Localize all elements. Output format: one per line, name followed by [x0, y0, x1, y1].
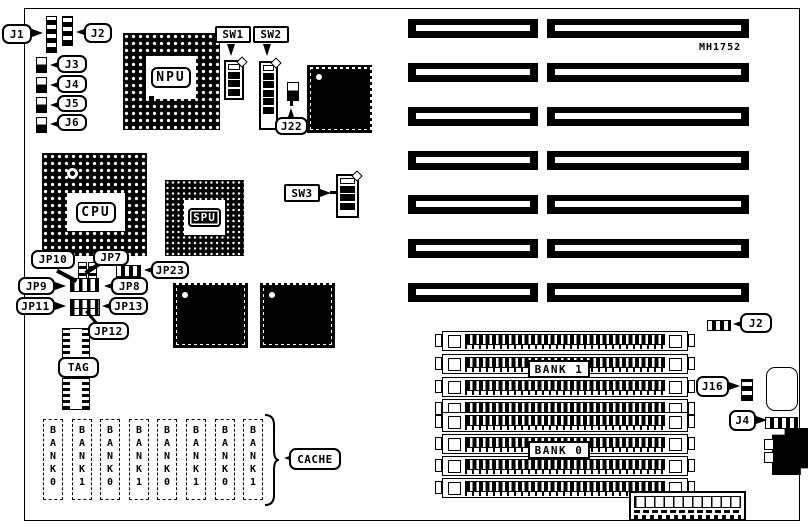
- label-jp12: JP12: [88, 322, 129, 340]
- sw3-cell: [340, 186, 355, 193]
- connector-jp23: [116, 265, 141, 277]
- sw2-cell: [263, 98, 274, 105]
- callout-tail-jp9: [55, 282, 70, 290]
- cache-socket-label: BANK0: [49, 424, 57, 499]
- label-j4-right: J4: [729, 410, 756, 431]
- sw3-cell: [340, 178, 355, 185]
- simm-stub: [435, 380, 442, 393]
- sw2-cell: [263, 107, 274, 114]
- cache-socket-label: BANK0: [106, 424, 114, 499]
- cache-socket: BANK0: [43, 419, 63, 500]
- simm-slot-bank1: [442, 377, 688, 397]
- expansion-slot-long: [547, 19, 749, 38]
- expansion-slot-long: [547, 63, 749, 82]
- label-jp11: JP11: [16, 297, 55, 315]
- slot-slit: [555, 201, 741, 207]
- label-sw1: SW1: [215, 26, 251, 43]
- cache-brace: [263, 412, 281, 512]
- callout-tail-j1: [32, 29, 47, 37]
- simm-pins: [465, 334, 665, 345]
- npu-pin1-marker: [149, 96, 154, 101]
- tag-sram-chip-lower: [62, 378, 90, 410]
- label-jp23: JP23: [151, 261, 189, 279]
- expansion-slot-long: [547, 151, 749, 170]
- label-j1: J1: [2, 24, 32, 44]
- callout-tail-j16: [729, 382, 744, 390]
- callout-tail-sw1: [227, 44, 235, 60]
- label-bank1: BANK 1: [528, 360, 590, 378]
- battery-outline: [766, 367, 798, 411]
- sw3-cell: [340, 203, 355, 210]
- simm-stub: [688, 402, 695, 415]
- simm-stub: [688, 380, 695, 393]
- label-j3: J3: [57, 55, 87, 73]
- cache-socket-label: BANK1: [135, 424, 143, 499]
- simm-ticks: [465, 391, 665, 395]
- simm-slot-bank1: [442, 331, 688, 351]
- sw1-cell: [228, 89, 240, 96]
- expansion-slot-short: [408, 283, 538, 302]
- slot-slit: [416, 245, 530, 251]
- simm-clip: [669, 460, 682, 473]
- simm-stub: [688, 459, 695, 472]
- cpu-chip-face: CPU: [67, 193, 125, 231]
- cache-socket: BANK1: [186, 419, 206, 500]
- slot-slit: [555, 157, 741, 163]
- simm-ticks: [465, 470, 665, 474]
- sw1-cell: [228, 72, 240, 79]
- slot-slit: [555, 289, 741, 295]
- qfp-chip-3-pin1-dot: [269, 292, 275, 298]
- simm-stub: [435, 334, 442, 347]
- cache-socket: BANK1: [129, 419, 149, 500]
- qfp-chip-1: [307, 65, 372, 133]
- slot-slit: [416, 289, 530, 295]
- label-jp10: JP10: [31, 250, 75, 269]
- callout-tail-jp11: [55, 302, 70, 310]
- simm-clip: [448, 358, 461, 371]
- simm-stub: [435, 459, 442, 472]
- expansion-slot-short: [408, 63, 538, 82]
- power-connector-comb: [634, 515, 741, 520]
- simm-stub: [435, 481, 442, 494]
- slot-slit: [416, 113, 530, 119]
- simm-clip: [448, 460, 461, 473]
- simm-pins: [465, 459, 665, 470]
- simm-pins: [465, 380, 665, 391]
- label-jp7: JP7: [93, 249, 129, 266]
- dip-switch-sw1: [224, 60, 244, 100]
- simm-ticks: [465, 426, 665, 430]
- simm-slot-bank0: [442, 412, 688, 432]
- label-j22: J22: [275, 117, 308, 135]
- qfp-chip-3: [260, 283, 335, 348]
- label-j5: J5: [57, 95, 87, 112]
- expansion-slot-long: [547, 239, 749, 258]
- cache-socket: BANK1: [72, 419, 92, 500]
- simm-clip: [448, 381, 461, 394]
- power-connector-pins: [634, 496, 741, 508]
- expansion-slot-long: [547, 195, 749, 214]
- spu-chip: SPU: [165, 180, 244, 256]
- connector-j2-right: [707, 320, 731, 331]
- motherboard-diagram: MH1752 J1 J2 J3 J4 J5 J6 NPU SW1 SW2: [0, 0, 808, 527]
- spu-chip-label: SPU: [188, 208, 221, 227]
- simm-stub: [435, 357, 442, 370]
- connector-j1: [46, 16, 57, 53]
- slot-slit: [416, 69, 530, 75]
- label-sw3: SW3: [284, 184, 320, 202]
- cache-socket-label: BANK0: [221, 424, 229, 499]
- simm-clip: [448, 482, 461, 495]
- simm-clip: [669, 358, 682, 371]
- simm-stub: [688, 437, 695, 450]
- label-j4: J4: [57, 75, 87, 93]
- qfp-chip-1-pin1-dot: [316, 74, 322, 80]
- sw3-cell: [340, 194, 355, 201]
- label-jp9: JP9: [18, 277, 55, 295]
- qfp-chip-2-pin1-dot: [182, 292, 188, 298]
- cache-socket: BANK0: [100, 419, 120, 500]
- keyboard-connector-pin: [764, 439, 774, 450]
- simm-stub: [435, 402, 442, 415]
- label-jp8: JP8: [111, 277, 148, 295]
- jumper-block-jp11-jp13: [70, 299, 100, 316]
- power-connector: [629, 491, 746, 521]
- slot-slit: [555, 245, 741, 251]
- npu-chip-face: NPU: [146, 56, 196, 99]
- cache-socket-label: BANK1: [78, 424, 86, 499]
- expansion-slot-short: [408, 239, 538, 258]
- board-ref-code: MH1752: [699, 42, 741, 53]
- spu-chip-face: SPU: [184, 200, 225, 235]
- label-j2-top: J2: [84, 23, 112, 43]
- simm-stub: [688, 415, 695, 428]
- slot-slit: [416, 25, 530, 31]
- simm-clip: [448, 335, 461, 348]
- callout-line-sw3: [330, 191, 337, 194]
- sw2-cell: [263, 81, 274, 88]
- cpu-chip-label: CPU: [76, 202, 115, 223]
- label-j2-right: J2: [740, 313, 772, 333]
- simm-clip: [669, 335, 682, 348]
- simm-ticks: [465, 345, 665, 349]
- simm-stub: [688, 334, 695, 347]
- expansion-slot-long: [547, 107, 749, 126]
- callout-tail-j4-right: [756, 416, 771, 424]
- simm-slot-bank0: [442, 456, 688, 476]
- expansion-slot-short: [408, 19, 538, 38]
- cache-socket: BANK1: [243, 419, 263, 500]
- sw2-cell: [263, 73, 274, 80]
- cache-socket-label: BANK1: [192, 424, 200, 499]
- label-cache: CACHE: [289, 448, 341, 470]
- slot-slit: [416, 157, 530, 163]
- cache-socket: BANK0: [157, 419, 177, 500]
- npu-socket: NPU: [123, 33, 220, 130]
- sw1-cell: [228, 80, 240, 87]
- keyboard-connector-pin: [764, 452, 774, 463]
- label-tag: TAG: [58, 357, 99, 378]
- sw2-cell: [263, 90, 274, 97]
- expansion-slot-short: [408, 151, 538, 170]
- slot-slit: [555, 25, 741, 31]
- cache-socket: BANK0: [215, 419, 235, 500]
- simm-stub: [688, 357, 695, 370]
- expansion-slot-long: [547, 283, 749, 302]
- slot-slit: [555, 113, 741, 119]
- dip-switch-sw3: [336, 174, 359, 218]
- simm-clip: [448, 416, 461, 429]
- keyboard-din-connector: [772, 428, 808, 475]
- slot-slit: [555, 69, 741, 75]
- simm-clip: [669, 381, 682, 394]
- simm-clip: [669, 416, 682, 429]
- simm-stub: [435, 437, 442, 450]
- simm-clip: [669, 438, 682, 451]
- cache-socket-label: BANK0: [163, 424, 171, 499]
- label-j6: J6: [57, 114, 87, 131]
- label-jp13: JP13: [109, 297, 148, 315]
- npu-chip-label: NPU: [151, 67, 190, 88]
- expansion-slot-short: [408, 195, 538, 214]
- qfp-chip-2: [173, 283, 248, 348]
- label-j16: J16: [696, 376, 729, 397]
- connector-j22: [287, 82, 299, 101]
- simm-pins: [465, 415, 665, 426]
- simm-stub: [435, 415, 442, 428]
- cpu-pin1-marker: [67, 168, 78, 179]
- expansion-slot-short: [408, 107, 538, 126]
- callout-tail-sw2: [263, 44, 271, 60]
- simm-clip: [448, 438, 461, 451]
- cpu-socket: CPU: [42, 153, 147, 256]
- cache-socket-label: BANK1: [249, 424, 257, 499]
- power-connector-dashes: [634, 510, 741, 513]
- jumper-block-midline: [71, 308, 99, 310]
- label-sw2: SW2: [253, 26, 289, 43]
- label-bank0: BANK 0: [528, 441, 590, 459]
- slot-slit: [416, 201, 530, 207]
